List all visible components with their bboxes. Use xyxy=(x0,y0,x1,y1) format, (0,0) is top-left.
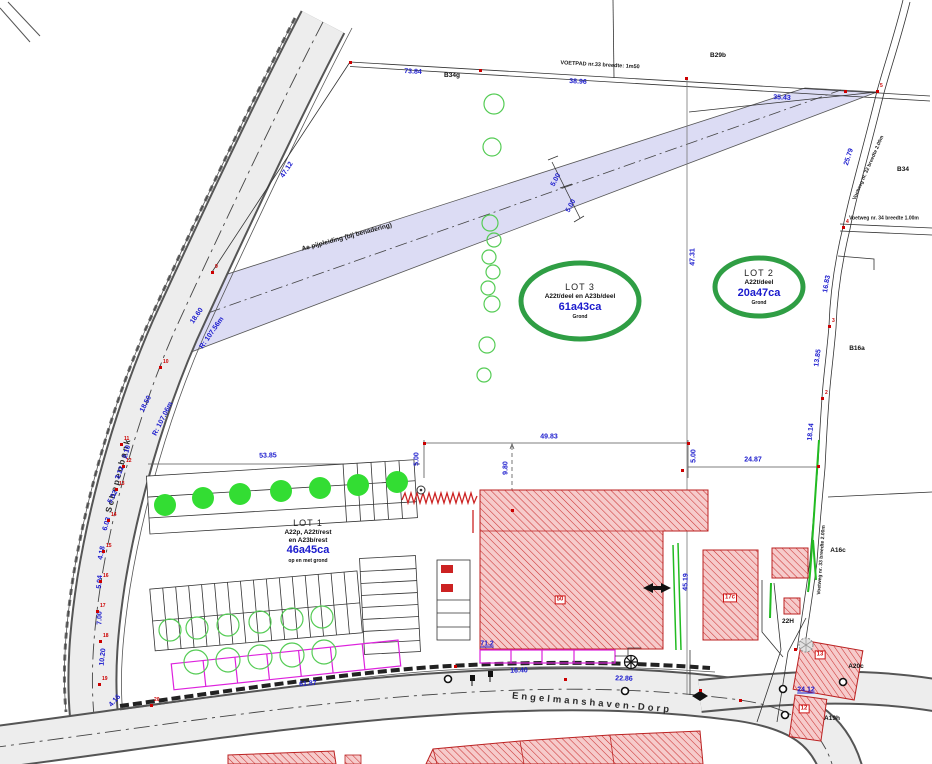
dimension-label: R: 107.56m xyxy=(199,316,226,350)
survey-point-number: 14 xyxy=(111,513,117,518)
parcel-label: B16a xyxy=(849,346,865,353)
dimension-label: 25.79 xyxy=(843,148,855,167)
survey-point xyxy=(685,77,688,80)
dimension-label: 18.50 xyxy=(139,395,153,414)
parcel-label: A16c xyxy=(830,548,846,555)
lot2-annotation: LOT 2 A22t/deel 20a47ca Grond xyxy=(738,268,781,306)
dimension-label: 5.00 xyxy=(550,172,563,187)
dimension-label: 9.80 xyxy=(503,461,510,475)
dimension-label: 10.20 xyxy=(99,648,108,666)
survey-point-number: 13 xyxy=(119,482,125,487)
survey-point xyxy=(211,271,214,274)
survey-point-number: 11 xyxy=(124,437,129,442)
survey-point xyxy=(99,640,102,643)
survey-point xyxy=(842,226,845,229)
survey-point xyxy=(107,519,110,522)
lot1-parcels: A22p, A22t/rest xyxy=(284,529,331,537)
survey-point xyxy=(115,488,118,491)
survey-point-number: 12 xyxy=(126,459,132,464)
dimension-label: 7.00 xyxy=(96,611,103,625)
survey-point xyxy=(844,90,847,93)
survey-point xyxy=(122,465,125,468)
cadastral-site-plan: Schepenbank Engelmanshaven-Dorp LOT 1 A2… xyxy=(0,0,932,764)
lot3-annotation: LOT 3 A22t/deel en A23b/deel 61a43ca Gro… xyxy=(545,282,616,320)
survey-point-number: 9 xyxy=(215,265,218,270)
survey-point xyxy=(564,678,567,681)
dimension-label: 71.2 xyxy=(480,641,494,648)
path-label: Voetweg nr. 33 breedte 2.00m xyxy=(817,525,827,595)
survey-point xyxy=(102,550,105,553)
survey-point-number: 15 xyxy=(106,544,112,549)
survey-point-number: 3 xyxy=(832,319,835,324)
path-label: VOETPAD nr.33 breedte: 1m50 xyxy=(560,61,640,71)
parcel-label: B34 xyxy=(897,167,909,174)
survey-point xyxy=(349,61,352,64)
dimension-label: 38.96 xyxy=(569,78,587,86)
survey-point xyxy=(876,90,879,93)
path-label: Voetweg nr. 32 breedte 2.00m xyxy=(853,135,886,201)
lot1-note: op en met grond xyxy=(284,558,331,564)
dimension-label: 16.40 xyxy=(510,667,528,675)
dimension-label: 45.19 xyxy=(682,573,690,591)
boxed-parcel-label: 50 xyxy=(555,595,566,604)
survey-point-number: 20 xyxy=(154,698,160,703)
dimension-label: 22.86 xyxy=(615,675,633,683)
dimension-label: 13.85 xyxy=(813,349,822,367)
survey-point-number: 16 xyxy=(103,574,109,579)
path-label: Voetweg nr. 34 breedte 1.00m xyxy=(849,217,919,222)
dimension-label: 5.00 xyxy=(565,198,578,213)
label-layer: Schepenbank Engelmanshaven-Dorp LOT 1 A2… xyxy=(0,0,932,764)
lot3-area: 61a43ca xyxy=(545,301,616,314)
parcel-label: A19h xyxy=(824,716,840,723)
lot3-note: Grond xyxy=(545,314,616,320)
survey-point-number: 18 xyxy=(103,634,109,639)
dimension-label: 18.14 xyxy=(807,423,816,441)
dimension-label: 5.00 xyxy=(691,449,698,463)
lot2-parcels: A22t/deel xyxy=(738,279,781,287)
dimension-label: 24.12 xyxy=(797,687,815,694)
dimension-label: 61.87 xyxy=(299,680,317,689)
lot1-annotation: LOT 1 A22p, A22t/rest en A23b/rest 46a45… xyxy=(284,518,331,564)
dimension-label: 35.43 xyxy=(773,94,791,102)
lot2-note: Grond xyxy=(738,300,781,306)
survey-point-number: 4 xyxy=(846,220,849,225)
boxed-parcel-label: 12 xyxy=(799,704,810,713)
survey-point xyxy=(828,325,831,328)
survey-point xyxy=(681,469,684,472)
path-label: Ae pijpleiding (bij benadering) xyxy=(301,223,393,253)
survey-point xyxy=(159,366,162,369)
dimension-label: 18.60 xyxy=(189,307,205,325)
lot3-name: LOT 3 xyxy=(545,282,616,293)
lot3-parcels: A22t/deel en A23b/deel xyxy=(545,293,616,301)
boxed-parcel-label: 17c xyxy=(723,593,737,602)
dimension-label: 47.12 xyxy=(279,161,294,180)
survey-point-number: 19 xyxy=(102,677,108,682)
survey-point-number: 10 xyxy=(163,360,169,365)
parcel-label: A20c xyxy=(848,664,864,671)
survey-point-number: 2 xyxy=(825,391,828,396)
survey-point xyxy=(479,69,482,72)
boxed-parcel-label: 13 xyxy=(815,650,826,659)
survey-point xyxy=(699,689,702,692)
survey-point xyxy=(454,665,457,668)
lot2-name: LOT 2 xyxy=(738,268,781,279)
survey-point xyxy=(687,442,690,445)
dimension-label: 73.84 xyxy=(404,68,422,76)
dimension-label: 5.00 xyxy=(414,452,421,466)
lot2-area: 20a47ca xyxy=(738,287,781,300)
survey-point xyxy=(794,648,797,651)
parcel-label: B34g xyxy=(444,73,460,80)
survey-point xyxy=(150,704,153,707)
survey-point xyxy=(120,443,123,446)
dimension-label: 49.83 xyxy=(540,434,558,441)
survey-point xyxy=(96,610,99,613)
lot1-area: 46a45ca xyxy=(284,545,331,558)
lot1-name: LOT 1 xyxy=(284,518,331,529)
survey-point xyxy=(739,699,742,702)
survey-point xyxy=(821,397,824,400)
survey-point-number: 17 xyxy=(100,604,106,609)
dimension-label: 53.85 xyxy=(259,452,277,460)
survey-point xyxy=(423,442,426,445)
survey-point xyxy=(98,683,101,686)
dimension-label: 4.16 xyxy=(108,694,122,709)
road-label-engelmanshaven-dorp: Engelmanshaven-Dorp xyxy=(512,691,673,716)
parcel-label: B29b xyxy=(710,53,726,60)
survey-point xyxy=(511,509,514,512)
dimension-label: 16.83 xyxy=(822,275,832,293)
lot1-parcels2: en A23b/rest xyxy=(284,537,331,545)
parcel-label: 22H xyxy=(782,619,794,626)
survey-point xyxy=(817,465,820,468)
survey-point-number: 5 xyxy=(880,84,883,89)
dimension-label: 24.87 xyxy=(744,457,762,464)
dimension-label: 47.31 xyxy=(690,248,697,266)
survey-point xyxy=(99,580,102,583)
dimension-label: R: 107.06m xyxy=(151,401,174,437)
